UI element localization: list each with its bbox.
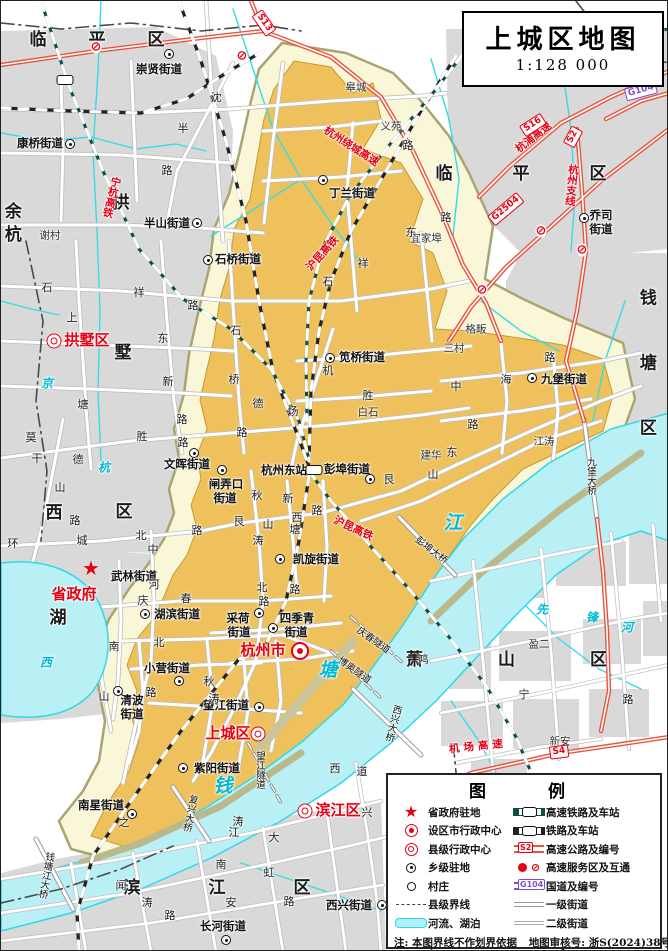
- map-label-东: 东: [447, 447, 458, 459]
- legend-item-town: 乡级驻地: [394, 859, 512, 878]
- legend-symbol-county-icon: [394, 843, 428, 856]
- town-seat-marker: [275, 554, 285, 564]
- legend-item-rail: 铁路及车站: [512, 822, 654, 841]
- map-label-格畈: 格畈: [466, 324, 487, 335]
- map-label-滨江区: 滨江区: [124, 880, 379, 898]
- map-title: 上城区地图: [464, 19, 662, 56]
- interchange-marker: ⊘: [237, 50, 248, 63]
- map-label-钱塘区: 钱塘区: [636, 289, 654, 484]
- map-label-东: 东: [158, 333, 169, 345]
- map-label-山: 山: [428, 469, 439, 481]
- town-seat-marker: [254, 702, 264, 712]
- legend-note: 注: 本图界线不作划界依据 地图审核号: 浙S(2024)38号: [394, 935, 654, 950]
- interchange-marker: ⊘: [536, 225, 547, 238]
- interchange-marker: ⊘: [477, 284, 488, 297]
- map-label-崇贤街道: 崇贤街道: [136, 63, 182, 75]
- road-badge-S2: S2: [563, 126, 583, 149]
- town-seat-marker: [365, 474, 375, 484]
- map-label-江: 江: [443, 514, 462, 534]
- map-label-半山街道: 半山街道: [144, 217, 190, 229]
- hangzhou-east-station: 杭州东站: [261, 464, 307, 476]
- legend-item-label: 铁路及车站: [546, 823, 599, 838]
- map-label-乔司: 乔司: [590, 209, 613, 221]
- shangcheng-district: 上城区: [205, 726, 250, 742]
- legend-item-county: 县级行政中心: [394, 840, 512, 859]
- map-label-石: 石: [323, 276, 334, 288]
- legend-item-label: 高速铁路及车站: [546, 805, 620, 820]
- map-label-彭埠大桥: 彭埠大桥: [413, 535, 449, 566]
- town-seat-marker: [65, 139, 75, 149]
- legend-audit-number: 地图审核号: 浙S(2024)38号: [529, 937, 668, 949]
- map-label-采荷: 采荷: [227, 612, 250, 624]
- map-label-南: 南: [109, 641, 120, 653]
- map-label-杭: 杭: [98, 462, 110, 475]
- map-label-谢村: 谢村: [40, 230, 61, 241]
- map-label-路: 路: [188, 300, 199, 312]
- legend-box: 图 例 ★省政府驻地设区市行政中心县级行政中心乡级驻地村庄县级界线河流、湖泊 高…: [386, 773, 662, 949]
- hangzhou-city: 杭州市: [240, 643, 285, 659]
- map-label-文晖街道: 文晖街道: [164, 458, 210, 470]
- map-label-东: 东: [406, 227, 417, 239]
- map-label-路: 路: [545, 352, 556, 364]
- map-label-九堡街道: 九堡街道: [541, 373, 587, 385]
- map-label-江: 江: [229, 827, 240, 839]
- map-label-江涛: 江涛: [534, 436, 555, 447]
- map-label-盈二: 盈二: [529, 639, 550, 650]
- map-label-艮: 艮: [384, 474, 395, 486]
- map-label-庆: 庆: [138, 595, 149, 607]
- town-seat-marker: [140, 609, 150, 619]
- map-label-涛: 涛: [233, 816, 244, 828]
- map-label-彭埠街道: 彭埠街道: [324, 463, 370, 475]
- railway-station-marker: [57, 75, 74, 85]
- interchange-marker: ⊘: [91, 41, 102, 54]
- county-center-marker: [47, 334, 62, 349]
- town-seat-marker: [268, 623, 278, 633]
- legend-item-label: 乡级驻地: [428, 860, 470, 875]
- map-label-路: 路: [312, 505, 323, 517]
- map-label-新: 新: [163, 376, 174, 388]
- legend-symbol-town-icon: [394, 863, 428, 873]
- map-label-清波: 清波: [121, 694, 144, 706]
- map-label-河: 河: [621, 622, 633, 635]
- map-label-庆春隧道: 庆春隧道: [355, 626, 392, 656]
- map-label-路: 路: [623, 694, 634, 706]
- map-label-紫阳街道: 紫阳街道: [194, 762, 240, 774]
- map-label-四季青: 四季青: [280, 612, 315, 624]
- map-label-祥: 祥: [134, 287, 145, 299]
- legend-item-service: ⊘高速服务区及互通: [512, 859, 654, 878]
- map-label-上: 上: [67, 312, 78, 324]
- map-label-涛: 涛: [209, 693, 220, 705]
- legend-item-label: 国道及编号: [546, 879, 599, 894]
- map-label-路: 路: [237, 427, 248, 439]
- legend-column-right: 高速铁路及车站铁路及车站S2高速公路及编号⊘高速服务区及互通G104国道及编号一…: [512, 803, 654, 933]
- legend-item-label: 县级界线: [428, 897, 470, 912]
- map-label-秋: 秋: [204, 676, 215, 688]
- legend-symbol-g104-icon: G104: [512, 882, 546, 890]
- map-label-桥: 桥: [229, 374, 240, 386]
- map-label-涛: 涛: [253, 535, 264, 547]
- town-seat-marker: [254, 608, 264, 618]
- town-seat-marker: [325, 353, 335, 363]
- legend-item-road2: 二级街道: [512, 914, 654, 933]
- legend-symbol-village-icon: [394, 882, 428, 891]
- map-label-闻: 闻: [116, 880, 127, 892]
- map-label-环: 环: [8, 538, 19, 550]
- map-label-三村: 三村: [444, 343, 465, 354]
- map-label-路: 路: [177, 414, 188, 426]
- map-label-南星街道: 南星街道: [78, 799, 124, 811]
- map-label-大: 大: [269, 832, 280, 844]
- map-label-湖滨街道: 湖滨街道: [154, 608, 200, 620]
- town-seat-marker: [203, 255, 213, 265]
- map-label-鸿: 鸿: [418, 654, 429, 666]
- map-label-路: 路: [403, 140, 414, 152]
- map-label-安: 安: [226, 897, 237, 909]
- legend-column-left: ★省政府驻地设区市行政中心县级行政中心乡级驻地村庄县级界线河流、湖泊: [394, 803, 512, 933]
- map-label-石桥街道: 石桥街道: [215, 253, 261, 265]
- town-seat-marker: [217, 465, 227, 475]
- legend-item-label: 村庄: [428, 879, 449, 894]
- map-label-沈: 沈: [211, 92, 222, 104]
- map-label-长河街道: 长河街道: [200, 920, 246, 932]
- legend-symbol-expwy-icon: S2: [512, 845, 546, 853]
- road-badge-S13: S13: [252, 9, 277, 37]
- town-seat-marker: [221, 935, 231, 945]
- map-label-小营街道: 小营街道: [144, 662, 190, 674]
- map-label-九堡大桥: 九堡大桥: [585, 457, 595, 495]
- map-label-塘: 塘: [290, 524, 301, 536]
- legend-item-boundary: 县级界线: [394, 896, 512, 915]
- map-label-闸弄口: 闸弄口: [209, 478, 244, 490]
- map-label-塘: 塘: [78, 399, 89, 411]
- map-label-中: 中: [148, 544, 159, 556]
- legend-symbol-road2-icon: [512, 921, 546, 925]
- town-seat-marker: [127, 809, 137, 819]
- town-seat-marker: [113, 686, 123, 696]
- legend-item-label: 省政府驻地: [428, 805, 481, 820]
- map-label-街道: 街道: [228, 626, 251, 638]
- legend-item-label: 二级街道: [546, 916, 588, 931]
- map-label-沪昆高铁: 沪昆高铁: [332, 515, 375, 543]
- map-label-路: 路: [146, 687, 157, 699]
- county-center-marker: [251, 727, 266, 742]
- map-label-西兴街道: 西兴街道: [326, 899, 372, 911]
- map-label-博奥隧道: 博奥隧道: [336, 656, 373, 686]
- map-label-西: 西: [46, 505, 63, 523]
- map-label-山: 山: [55, 482, 66, 494]
- town-seat-marker: [579, 213, 589, 223]
- legend-item-star: ★省政府驻地: [394, 803, 512, 822]
- map-label-北: 北: [136, 530, 147, 542]
- map-label-德: 德: [73, 454, 84, 466]
- map-label-义苑: 义苑: [381, 121, 402, 132]
- map-label-墅: 墅: [115, 345, 132, 363]
- map-label-宁: 宁: [519, 689, 530, 701]
- railway-station-marker: [306, 465, 323, 475]
- map-label-路: 路: [259, 596, 270, 608]
- map-label-街道: 街道: [214, 492, 237, 504]
- map-label-余杭: 余杭: [1, 202, 19, 248]
- road-badge-S4: S4: [549, 744, 569, 759]
- map-label-湖: 湖: [50, 610, 67, 628]
- map-scale: 1:128 000: [464, 56, 662, 74]
- legend-item-label: 高速服务区及互通: [546, 860, 630, 875]
- map-label-山: 山: [99, 691, 110, 703]
- gongshu-district: 拱墅区: [64, 333, 109, 349]
- legend-item-hsr: 高速铁路及车站: [512, 803, 654, 822]
- map-label-钱: 钱: [213, 777, 232, 797]
- map-label-先: 先: [536, 604, 548, 617]
- map-label-路: 路: [178, 437, 189, 449]
- map-label-望江隧道: 望江隧道: [254, 751, 264, 789]
- map-label-临平区: 临平区: [30, 32, 207, 50]
- map-label-石: 石: [42, 282, 53, 294]
- legend-note-text: 注: 本图界线不作划界依据: [394, 937, 517, 949]
- map-label-复兴大桥: 复兴大桥: [180, 793, 198, 832]
- legend-item-expwy: S2高速公路及编号: [512, 840, 654, 859]
- map-label-机: 机: [323, 365, 334, 377]
- map-label-皋城: 皋城: [346, 82, 367, 93]
- provincial-government-star: ★: [82, 558, 100, 578]
- legend-title: 图 例: [408, 777, 654, 802]
- map-label-虹: 虹: [264, 867, 275, 879]
- map-label-塘: 塘: [318, 661, 337, 681]
- map-label-机场高速: 机场高速: [449, 738, 508, 755]
- legend-item-label: 一级街道: [546, 897, 588, 912]
- map-label-河: 河: [149, 579, 160, 591]
- provincial-government: 省政府: [51, 587, 96, 603]
- map-label-中: 中: [451, 381, 462, 393]
- legend-item-label: 设区市行政中心: [428, 823, 502, 838]
- town-seat-marker: [164, 49, 174, 59]
- map-label-路: 路: [290, 584, 301, 596]
- binjiang-district: 滨江区: [315, 803, 360, 819]
- map-label-道: 道: [357, 766, 368, 778]
- map-label-春: 春: [181, 593, 192, 605]
- map-label-沪昆高铁: 沪昆高铁: [305, 235, 341, 274]
- town-seat-marker: [189, 448, 199, 458]
- map-label-锋: 锋: [586, 612, 598, 625]
- map-label-萧山区: 萧山区: [406, 652, 668, 670]
- map-label-场: 场: [288, 406, 299, 418]
- map-label-涛: 涛: [142, 897, 153, 909]
- map-label-康桥街道: 康桥街道: [17, 137, 63, 149]
- map-label-临平区: 临平区: [436, 166, 667, 184]
- map-label-石: 石: [231, 325, 242, 337]
- legend-item-g104: G104国道及编号: [512, 877, 654, 896]
- legend-symbol-river-icon: [394, 918, 428, 928]
- map-label-半: 半: [178, 123, 189, 135]
- map-label-凯旋街道: 凯旋街道: [293, 553, 339, 565]
- legend-symbol-rail-icon: [512, 827, 546, 835]
- county-center-marker: [298, 804, 313, 819]
- map-label-艮: 艮: [234, 516, 245, 528]
- map-label-街道: 街道: [285, 626, 308, 638]
- map-label-祥: 祥: [358, 258, 369, 270]
- map-label-海: 海: [501, 374, 512, 386]
- map-label-胜: 胜: [137, 431, 148, 443]
- map-label-杭州绕城高速: 杭州绕城高速: [322, 125, 381, 169]
- town-seat-marker: [527, 373, 537, 383]
- city-center-marker: [291, 642, 309, 660]
- map-sheet: 临平区临平区余杭拱墅西区湖钱塘区萧山区滨江区省政府拱墅区杭州市上城区滨江区崇贤街…: [0, 0, 668, 951]
- map-label-北: 北: [257, 582, 268, 594]
- legend-symbol-boundary-icon: [394, 904, 428, 905]
- map-label-西: 西: [292, 512, 303, 524]
- town-seat-marker: [174, 676, 184, 686]
- legend-symbol-service-icon: ⊘: [512, 862, 546, 873]
- legend-item-village: 村庄: [394, 877, 512, 896]
- map-label-兴: 兴: [362, 807, 373, 819]
- map-label-笕桥街道: 笕桥街道: [339, 351, 385, 363]
- map-label-胜: 胜: [363, 390, 374, 402]
- legend-item-label: 县级行政中心: [428, 842, 491, 857]
- map-label-街道: 街道: [590, 223, 613, 235]
- map-label-秋: 秋: [252, 490, 263, 502]
- map-label-山: 山: [263, 519, 274, 531]
- legend-symbol-star-icon: ★: [394, 804, 428, 820]
- map-label-路: 路: [165, 910, 176, 922]
- map-label-白石: 白石: [358, 407, 379, 418]
- road-badge-G2504: G2504: [487, 192, 525, 227]
- interchange-marker: ⊘: [577, 244, 588, 257]
- map-label-区: 区: [116, 504, 133, 522]
- map-label-西兴大桥: 西兴大桥: [382, 703, 401, 742]
- map-label-新: 新: [283, 493, 294, 505]
- town-seat-marker: [178, 763, 188, 773]
- map-label-街道: 街道: [121, 708, 144, 720]
- legend-item-city: 设区市行政中心: [394, 822, 512, 841]
- map-label-西: 西: [330, 763, 341, 775]
- town-seat-marker: [318, 175, 328, 185]
- legend-item-label: 河流、湖泊: [428, 916, 481, 931]
- map-label-莫: 莫: [26, 432, 37, 444]
- map-label-路: 路: [162, 165, 173, 177]
- legend-item-road1: 一级街道: [512, 896, 654, 915]
- map-label-钱塘江大桥: 钱塘江大桥: [36, 851, 54, 900]
- map-label-路: 路: [192, 525, 203, 537]
- map-label-干: 干: [32, 453, 43, 465]
- legend-item-label: 高速公路及编号: [546, 842, 620, 857]
- legend-symbol-road1-icon: [512, 902, 546, 907]
- map-label-路: 路: [468, 419, 479, 431]
- map-label-城: 城: [77, 535, 88, 547]
- legend-symbol-hsr-icon: [512, 808, 546, 816]
- map-label-之: 之: [119, 817, 130, 829]
- map-title-box: 上城区地图 1:128 000: [462, 11, 664, 87]
- map-label-西: 西: [40, 657, 52, 670]
- map-label-丁兰街道: 丁兰街道: [329, 187, 375, 199]
- map-label-德: 德: [253, 398, 264, 410]
- map-label-路: 路: [70, 515, 81, 527]
- town-seat-marker: [192, 218, 202, 228]
- map-label-南: 南: [216, 859, 227, 871]
- map-label-路: 路: [441, 212, 452, 224]
- legend-symbol-city-icon: [394, 824, 428, 837]
- legend-item-river: 河流、湖泊: [394, 914, 512, 933]
- map-label-路: 路: [284, 896, 295, 908]
- map-label-京: 京: [41, 378, 53, 391]
- map-label-北: 北: [154, 637, 165, 649]
- map-label-建华: 建华: [421, 450, 442, 461]
